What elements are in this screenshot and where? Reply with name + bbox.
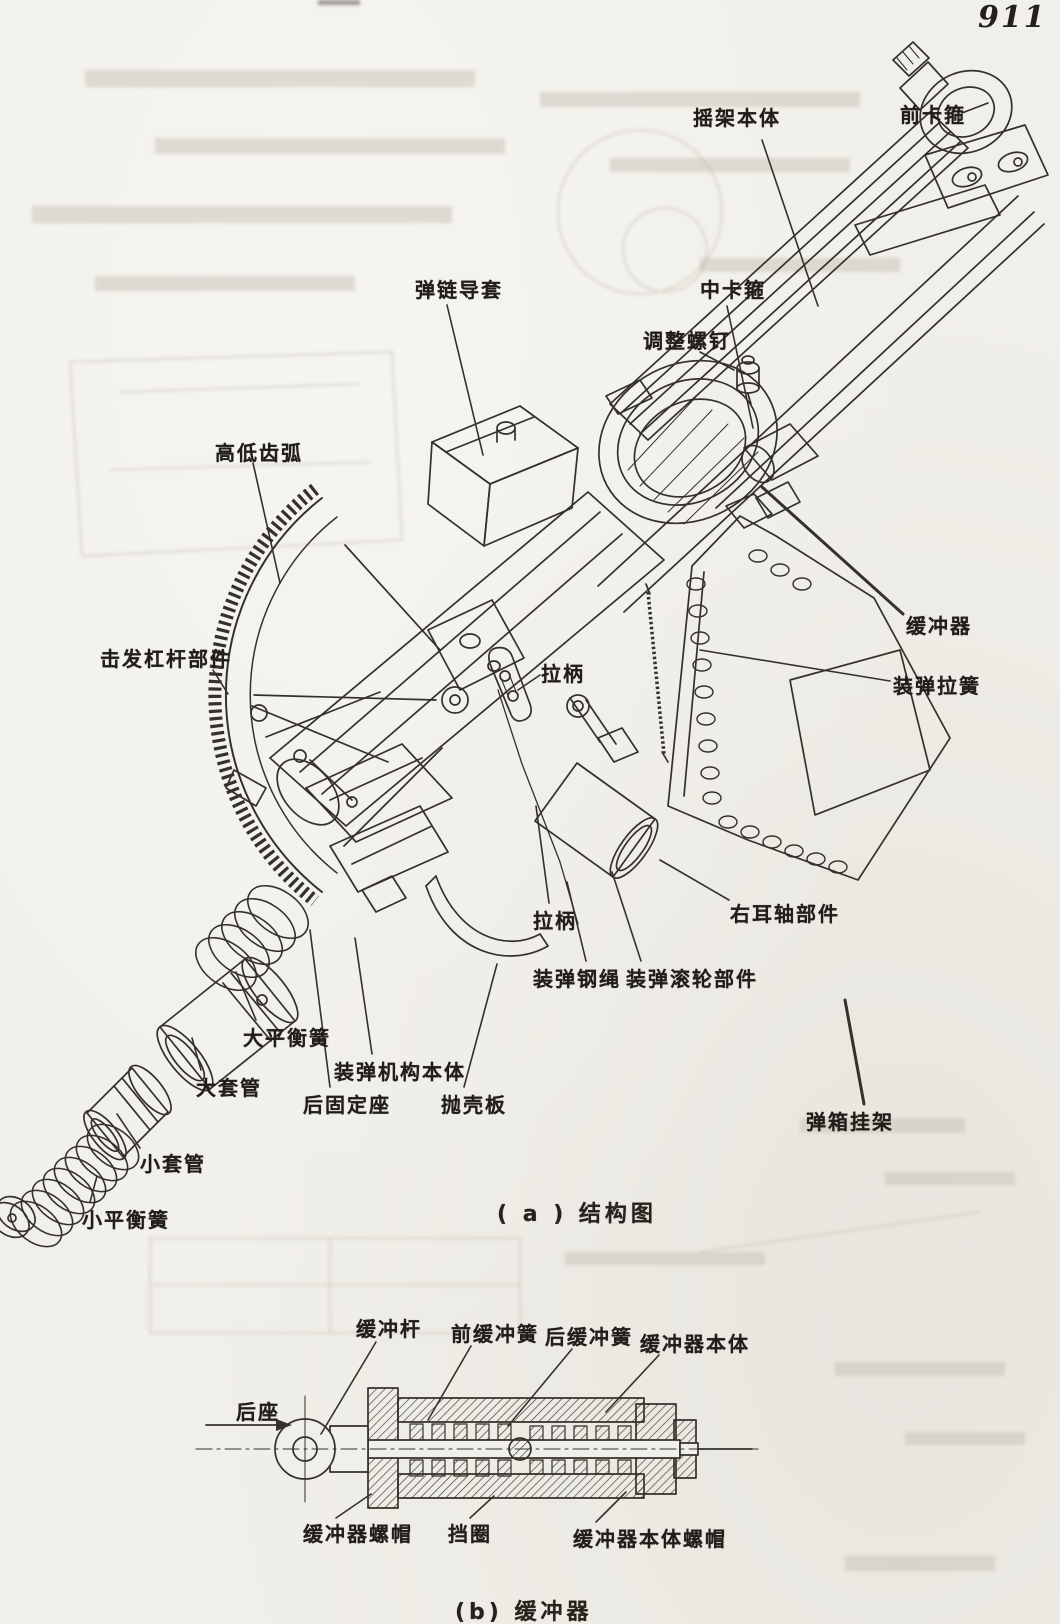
figure_a-label-10: 拉柄 xyxy=(533,905,577,934)
leader-line xyxy=(700,650,890,681)
leader-line xyxy=(612,872,641,961)
figure_a-label-4: 调整螺钉 xyxy=(643,325,731,354)
leader-line xyxy=(470,1496,494,1518)
leader-line xyxy=(117,1114,140,1148)
leader-line xyxy=(762,140,818,306)
figure_a-label-11: 右耳轴部件 xyxy=(730,898,840,927)
figure_a-label-13: 装弹滚轮部件 xyxy=(626,963,758,992)
leader-line xyxy=(213,670,228,694)
figure_b-label-5: 缓冲器螺帽 xyxy=(303,1518,413,1547)
leader-line xyxy=(90,1176,97,1202)
figure_b-label-0: 缓冲杆 xyxy=(356,1313,422,1342)
leader-line xyxy=(845,1000,864,1104)
figure_a-label-16: 小套管 xyxy=(140,1148,206,1177)
leader-line xyxy=(508,1349,572,1426)
leader-line xyxy=(606,1355,659,1412)
leader-line xyxy=(428,1346,471,1420)
figure_a-label-15: 大套管 xyxy=(196,1072,262,1101)
leader-line xyxy=(596,1492,626,1522)
leader-line xyxy=(447,305,483,455)
figure_b-label-4: 后座 xyxy=(236,1396,280,1425)
leader-line xyxy=(536,806,549,903)
figure_a-label-21: 弹箱挂架 xyxy=(806,1106,894,1135)
figure_a-label-8: 缓冲器 xyxy=(906,610,972,639)
leader-line xyxy=(762,487,903,614)
figure-b-caption: (b) 缓冲器 xyxy=(455,1594,593,1624)
leader-line xyxy=(336,1494,371,1518)
figure-a-caption: ( a ) 结构图 xyxy=(497,1196,657,1228)
figure_a-label-5: 高低齿弧 xyxy=(215,437,303,466)
figure_a-label-14: 大平衡簧 xyxy=(243,1022,331,1051)
leader-line xyxy=(310,930,330,1087)
leader-line xyxy=(355,938,372,1054)
figure_a-label-18: 装弹机构本体 xyxy=(334,1056,466,1085)
leader-line xyxy=(321,1342,376,1434)
figure_b-label-3: 缓冲器本体 xyxy=(640,1328,750,1357)
figure_a-label-1: 前卡箍 xyxy=(900,99,966,128)
figure_a-label-0: 摇架本体 xyxy=(693,102,781,131)
figure_a-label-12: 装弹钢绳 xyxy=(533,963,621,992)
page-number: 911 xyxy=(978,0,1047,35)
figure_a-label-3: 中卡箍 xyxy=(700,274,766,303)
figure_b-label-7: 缓冲器本体螺帽 xyxy=(573,1523,727,1552)
leader-line xyxy=(700,352,734,370)
leader-line xyxy=(253,463,280,583)
figure_a-label-6: 击发杠杆部件 xyxy=(100,643,232,672)
leader-line xyxy=(660,860,729,900)
figure_a-label-17: 小平衡簧 xyxy=(82,1204,170,1233)
leader-line xyxy=(192,1038,201,1070)
leader-line xyxy=(518,675,540,690)
leader-line xyxy=(464,964,497,1087)
scanned-manual-page: 摇架本体前卡箍弹链导套中卡箍调整螺钉高低齿弧击发杠杆部件拉柄缓冲器装弹拉簧拉柄右… xyxy=(0,0,1060,1624)
figure_b-label-1: 前缓冲簧 xyxy=(451,1318,539,1347)
leader-lines xyxy=(0,0,1060,1624)
figure_a-label-19: 后固定座 xyxy=(303,1089,391,1118)
figure_b-label-2: 后缓冲簧 xyxy=(545,1321,633,1350)
figure_b-label-6: 挡圈 xyxy=(448,1518,492,1547)
leader-line xyxy=(236,972,256,1020)
figure_a-label-9: 装弹拉簧 xyxy=(893,670,981,699)
figure_a-label-20: 抛壳板 xyxy=(441,1089,507,1118)
figure_a-label-2: 弹链导套 xyxy=(415,274,503,303)
figure_a-label-7: 拉柄 xyxy=(541,658,585,687)
